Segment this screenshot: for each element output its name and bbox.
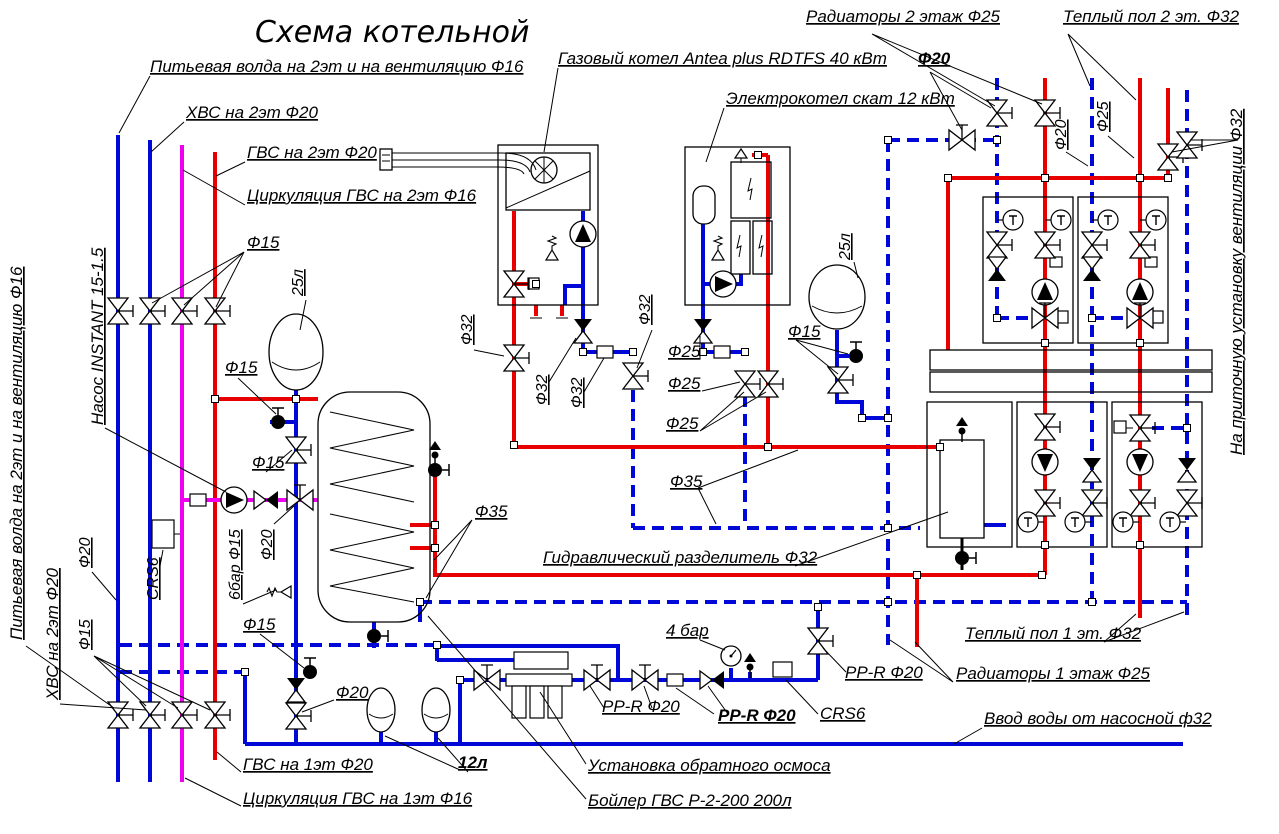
actuator-box-icon <box>1114 421 1126 433</box>
label-drinking-top: Питьевая волда на 2эт и на вентиляцию Ф1… <box>150 57 524 76</box>
coil-icon <box>330 514 414 602</box>
label-f15-b: Ф15 <box>252 453 285 472</box>
cold-distribution-dashed <box>120 645 437 672</box>
pump-icon <box>1032 279 1058 305</box>
valve-icon <box>1035 414 1060 440</box>
label-separator: Гидравлический разделитель Ф32 <box>543 548 818 567</box>
label-f15-left: Ф15 <box>77 619 94 650</box>
label-f15-a: Ф15 <box>225 358 258 377</box>
safety-valve-icon <box>712 236 724 260</box>
check-valve-icon <box>694 319 712 343</box>
label-radiators-1f: Радиаторы 1 этаж Ф25 <box>956 664 1151 683</box>
ball-valve-icon <box>303 658 317 679</box>
valve-icon <box>1082 490 1107 516</box>
safety-valve-icon <box>546 236 558 260</box>
valve-icon <box>735 371 760 397</box>
check-valve-icon <box>1178 458 1196 482</box>
diagram-canvas: Схема котельной Питьевая волда на 2эт и … <box>0 0 1279 834</box>
valve-icon <box>949 125 975 150</box>
ball-valve-icon <box>367 629 388 643</box>
label-gvs-circ-top: Циркуляция ГВС на 2эт Ф16 <box>247 186 477 205</box>
check-valve-icon <box>254 491 278 509</box>
valve-icon <box>1130 232 1155 258</box>
label-hvs-left: ХВС на 2эт Ф20 <box>43 567 62 701</box>
gas-boiler-drains <box>536 305 562 316</box>
label-pump-instant: Насос INSTANT 15-1.5 <box>88 247 107 425</box>
thermometer-icon <box>997 210 1023 230</box>
distribution-manifold <box>930 350 1212 392</box>
air-vent-icon <box>956 417 968 442</box>
coil-icon <box>330 412 414 502</box>
gas-boiler-heat-exchanger <box>506 153 590 210</box>
valve-icon <box>205 702 230 728</box>
label-f32-b: Ф32 <box>534 374 551 405</box>
expansion-tank-icon <box>422 688 450 732</box>
dhw-tank-bottom-stub <box>374 602 420 648</box>
label-f20-riser: Ф20 <box>1053 119 1070 150</box>
osmosis-tank <box>514 652 568 669</box>
check-valve-icon <box>700 671 724 689</box>
check-valve-icon <box>574 319 592 343</box>
label-tank25-right: 25л <box>837 233 854 261</box>
valve-icon <box>108 298 133 324</box>
three-way-valve-icon <box>1130 415 1155 441</box>
ball-valve-icon <box>955 551 976 565</box>
label-f20-feed: Ф20 <box>336 683 369 702</box>
label-vent-unit: На приточную установку вентиляции Ф32 <box>1227 108 1246 455</box>
label-crs6-left: CRS6 <box>145 557 162 600</box>
label-f25-a: Ф25 <box>668 342 701 361</box>
filter-cartridge <box>548 686 562 718</box>
electric-boiler <box>685 147 790 305</box>
label-f32-a: Ф32 <box>459 314 476 345</box>
valve-icon <box>1035 232 1060 258</box>
label-4bar: 4 бар <box>666 621 709 640</box>
crs6-sensor-icon <box>152 520 174 548</box>
label-osmosis: Установка обратного осмоса <box>587 756 831 775</box>
inline-sensors <box>152 257 1163 686</box>
label-f32-c: Ф32 <box>569 377 586 408</box>
label-crs6-bottom: CRS6 <box>820 704 866 723</box>
label-radiators-2f: Радиаторы 2 этаж Ф25 <box>806 7 1001 26</box>
valve-icon <box>474 665 500 690</box>
boiler-room-diagram: Схема котельной Питьевая волда на 2эт и … <box>0 0 1279 834</box>
pump-icon <box>570 221 596 247</box>
label-f35-b: Ф35 <box>475 502 508 521</box>
valve-icon <box>286 703 311 729</box>
valve-icon <box>623 363 648 389</box>
ball-valve-icon <box>849 342 863 363</box>
label-gvs-1f: ГВС на 1эт Ф20 <box>243 755 373 774</box>
pump-icon <box>1127 449 1153 475</box>
check-valve-icon <box>1083 458 1101 482</box>
label-f25-riser: Ф25 <box>1095 101 1112 132</box>
air-vent-icon <box>735 149 747 158</box>
flue-pipe <box>392 153 536 174</box>
expansion-tank-icon <box>809 265 865 329</box>
label-tank25-left: 25л <box>290 269 307 297</box>
electric-boiler-supply <box>752 155 768 447</box>
hydraulic-separator <box>927 402 1012 570</box>
valve-icon <box>808 628 833 654</box>
valve-icon <box>758 371 783 397</box>
flow-sensor-icon <box>190 494 206 506</box>
label-6bar-f15: 6бар Ф15 <box>227 529 244 600</box>
label-f25-c: Ф25 <box>666 414 699 433</box>
air-vent-icon <box>744 653 756 678</box>
expansion-tank-icon <box>367 688 395 732</box>
label-tank12: 12л <box>458 753 488 772</box>
label-floor-heating-1f: Теплый пол 1 эт. Ф32 <box>965 624 1142 643</box>
pump-icon <box>1032 449 1058 475</box>
valve-icon <box>140 298 165 324</box>
label-gvs-top: ГВС на 2эт Ф20 <box>247 143 377 162</box>
separator-body <box>940 440 984 538</box>
label-ppr-c: PP-R Ф20 <box>718 706 796 725</box>
filter-cartridge <box>512 686 526 718</box>
pressure-gauge-icon <box>721 646 741 666</box>
three-way-valve-icon <box>504 271 529 297</box>
label-hvs-top: ХВС на 2эт Ф20 <box>185 103 319 122</box>
valve-icon <box>140 702 165 728</box>
label-f20-top: Ф20 <box>918 49 951 68</box>
gas-boiler-supply <box>514 211 528 445</box>
valve-icon <box>1035 490 1060 516</box>
label-f35-a: Ф35 <box>670 472 703 491</box>
valve-icon <box>205 298 230 324</box>
labels: Схема котельной Питьевая волда на 2эт и … <box>7 7 1246 810</box>
ball-valve-icon <box>428 463 449 477</box>
label-f25-b: Ф25 <box>668 374 701 393</box>
label-f15-valves: Ф15 <box>247 233 280 252</box>
supply-manifold <box>930 350 1212 370</box>
valve-icon <box>1177 132 1202 158</box>
label-f15-tank: Ф15 <box>788 322 821 341</box>
dhw-boiler-tank <box>318 392 430 622</box>
reverse-osmosis-unit <box>506 652 572 718</box>
filter-cartridge <box>530 686 544 718</box>
label-gas-boiler: Газовый котел Antea plus RDTFS 40 кВт <box>558 49 887 68</box>
expansion-vessel-icon <box>693 186 715 224</box>
label-f32-d: Ф32 <box>637 294 654 325</box>
dhw-tank-body <box>318 392 430 622</box>
heating-return-dashed-pipes <box>120 78 1187 672</box>
valve-icon <box>172 702 197 728</box>
label-f20-mag: Ф20 <box>259 529 276 560</box>
label-water-inlet: Ввод воды от насосной ф32 <box>984 709 1212 728</box>
valve-icon <box>286 437 311 463</box>
expansion-tank-icon <box>269 314 323 390</box>
label-boiler-dhw: Бойлер ГВС Р-2-200 200л <box>588 791 792 810</box>
label-f15-drain: Ф15 <box>243 615 276 634</box>
thermometer-icon <box>1092 210 1118 230</box>
crs6-sensor-icon <box>773 662 792 677</box>
flue-cap <box>380 149 392 170</box>
valve-icon <box>828 367 853 393</box>
check-valve-icon <box>988 257 1006 281</box>
flow-sensor-icon <box>597 346 613 358</box>
label-electric-boiler: Электрокотел скат 12 кВт <box>726 89 955 108</box>
air-vent-icon <box>429 441 441 466</box>
valve-icon <box>1082 232 1107 258</box>
valve-icon <box>172 298 197 324</box>
radiators2-return-riser <box>997 78 1038 318</box>
valve-icon <box>504 345 529 371</box>
thermometer-icon <box>1045 210 1071 230</box>
label-ppr-b: PP-R Ф20 <box>602 697 680 716</box>
check-valve-icon <box>287 678 305 702</box>
valve-icon <box>987 232 1012 258</box>
return-manifold <box>930 372 1212 392</box>
label-drinking-left: Питьевая волда на 2эт и на вентиляцию Ф1… <box>7 266 26 640</box>
thermometer-icon <box>1140 210 1166 230</box>
check-valve-icon <box>1083 257 1101 281</box>
electric-boiler-body <box>685 147 790 305</box>
valve-icon <box>1130 490 1155 516</box>
valve-icon <box>584 665 610 690</box>
label-ppr-a: PP-R Ф20 <box>845 663 923 682</box>
valve-icon <box>1177 490 1202 516</box>
valve-icon <box>287 485 313 510</box>
flow-sensor-icon <box>667 674 683 686</box>
label-floor-heating-2f: Теплый пол 2 эт. Ф32 <box>1063 7 1240 26</box>
pump-icon <box>1127 279 1153 305</box>
pump-icon <box>710 271 736 297</box>
label-gvs-circ-1f: Циркуляция ГВС на 1эт Ф16 <box>243 789 473 808</box>
valve-icon <box>632 665 658 690</box>
osmosis-head <box>506 674 572 686</box>
flow-sensor-icon <box>714 346 730 358</box>
label-f20-left: Ф20 <box>77 537 94 568</box>
page-title: Схема котельной <box>255 15 529 50</box>
expansion-tank2-pipe <box>837 330 886 418</box>
